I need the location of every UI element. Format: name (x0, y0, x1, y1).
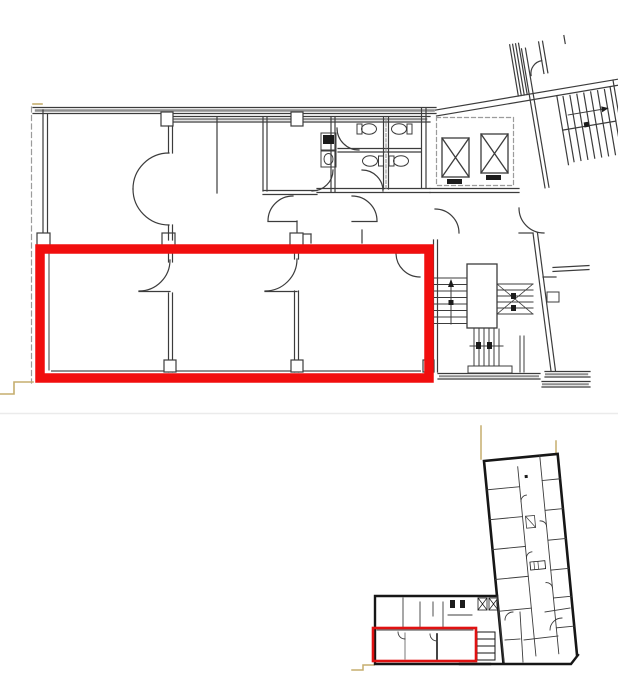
overview-plan (352, 426, 578, 670)
upper-room-doors (133, 126, 173, 240)
door-arc (337, 128, 359, 150)
toilet-fixtures (357, 124, 412, 166)
door-arc (352, 196, 377, 221)
stair-landing (468, 366, 512, 373)
main-floor-plan (32, 23, 618, 387)
suite-room-walls (139, 240, 438, 372)
upper-staircase (556, 80, 618, 169)
door-arc (435, 209, 459, 233)
elevator-door (447, 179, 462, 184)
mid-zone-walls (217, 117, 377, 243)
door-arc (362, 170, 383, 191)
stair-shaft (467, 264, 497, 328)
door-arc (139, 260, 170, 291)
central-staircase (434, 264, 533, 373)
stair-arrow (448, 279, 454, 287)
door-arc (265, 259, 297, 291)
elevator-shaft-icon (442, 134, 508, 177)
top-exterior-wall (33, 108, 436, 123)
door-arc (133, 189, 169, 225)
sink-basin (324, 154, 333, 165)
elevator-lobby (430, 118, 519, 193)
structural-columns (37, 112, 434, 372)
cabinet-fixture-dark (323, 135, 334, 144)
door-arc (312, 170, 333, 191)
tower-outline (484, 454, 577, 662)
door-arc (519, 208, 544, 233)
corridor-doors (435, 208, 544, 233)
floorplan-viewer (0, 0, 618, 688)
elevator-door (486, 175, 501, 180)
highlight-rectangle (40, 249, 429, 378)
door-arc (396, 253, 420, 277)
lobby-dashed-outline (437, 118, 514, 186)
floor-plan-image (0, 0, 618, 688)
door-arc (133, 153, 169, 189)
overview-tower (484, 454, 577, 662)
door-arc (268, 196, 293, 221)
toilet-block (312, 108, 430, 193)
